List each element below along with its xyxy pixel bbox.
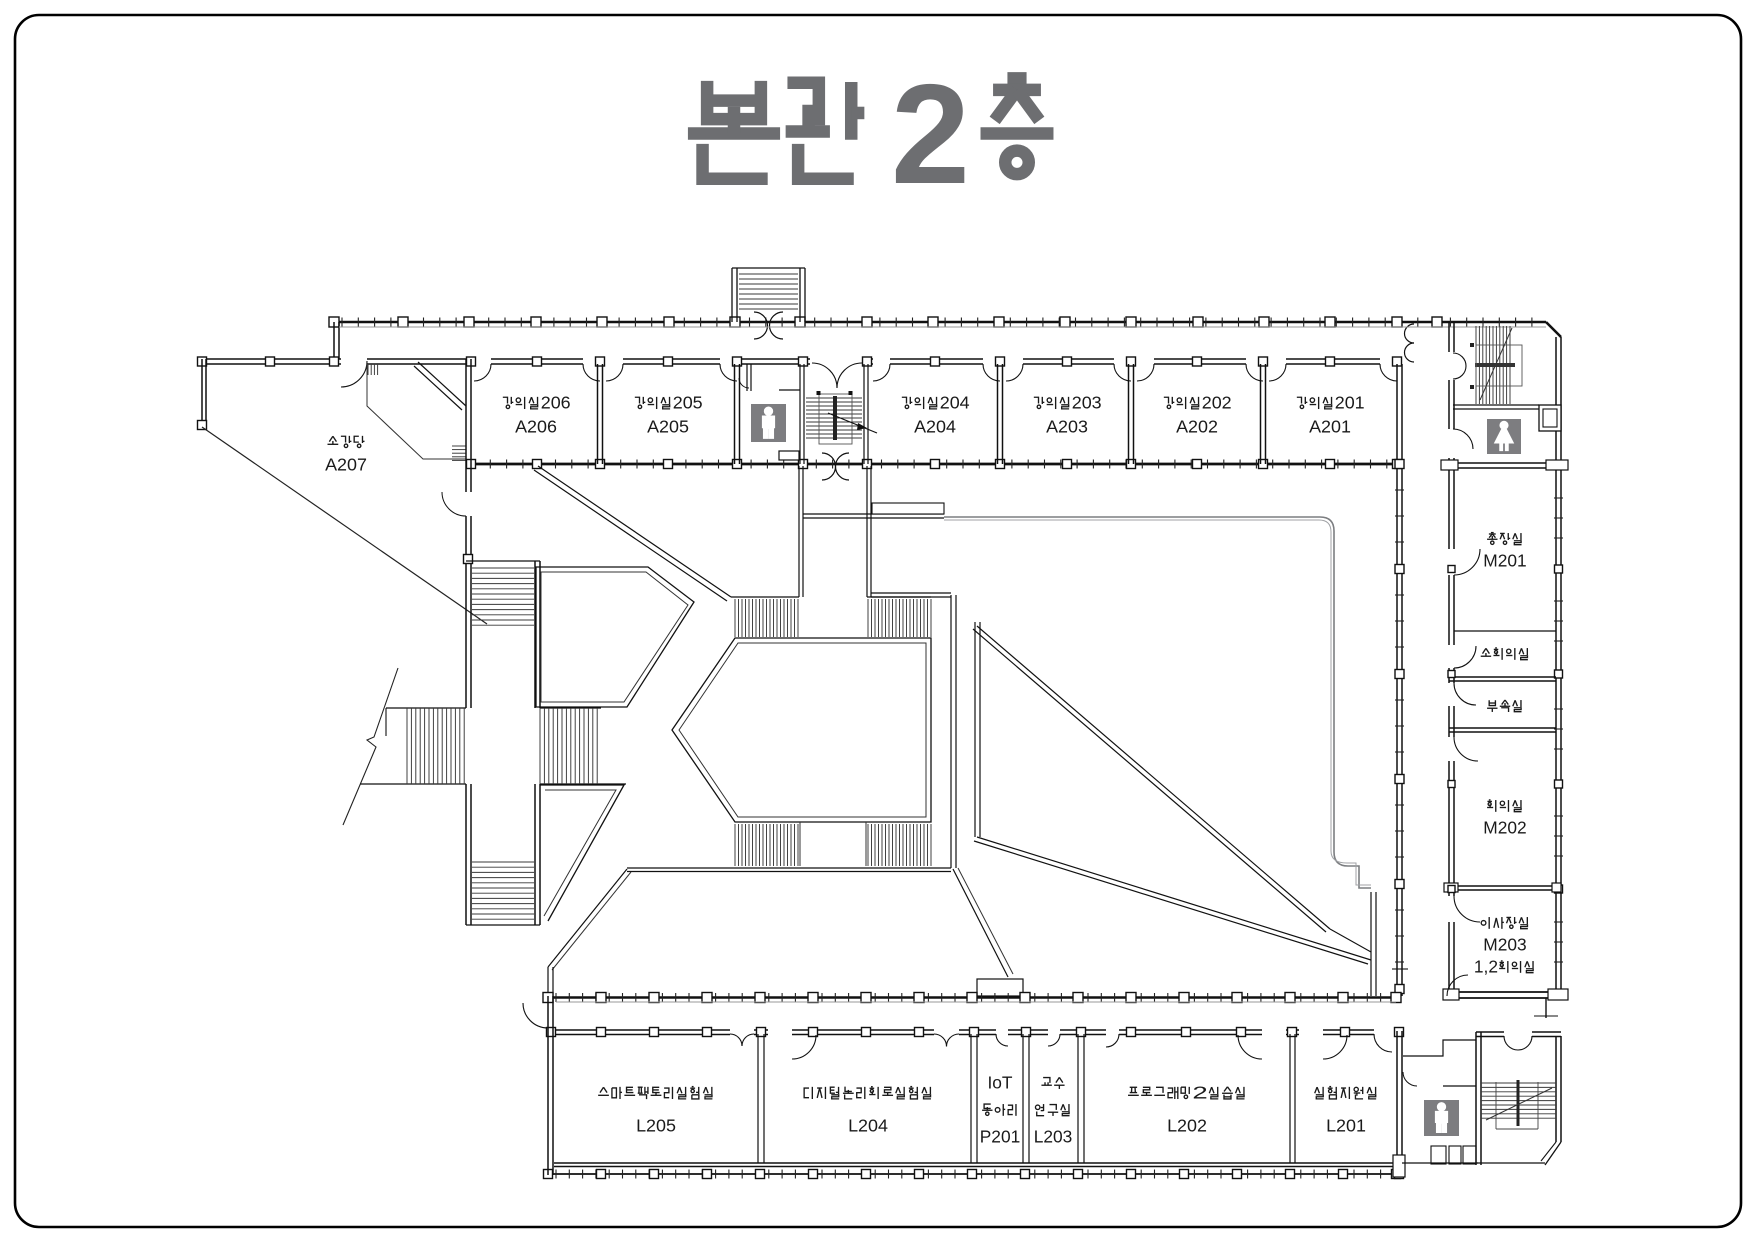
svg-text:A206: A206 (515, 417, 557, 437)
svg-text:L205: L205 (636, 1116, 676, 1136)
svg-text:M202: M202 (1483, 818, 1526, 838)
svg-text:A201: A201 (1309, 417, 1351, 437)
svg-text:A207: A207 (325, 455, 367, 475)
svg-text:L201: L201 (1326, 1116, 1366, 1136)
svg-text:206: 206 (541, 393, 571, 413)
svg-text:L203: L203 (1034, 1127, 1073, 1147)
svg-text:1,2: 1,2 (1474, 957, 1498, 977)
svg-text:A205: A205 (647, 417, 689, 437)
svg-text:A203: A203 (1046, 417, 1088, 437)
svg-text:2: 2 (891, 55, 970, 214)
svg-text:M203: M203 (1483, 935, 1526, 955)
svg-text:201: 201 (1335, 393, 1365, 413)
svg-text:P201: P201 (980, 1127, 1021, 1147)
svg-text:2: 2 (1192, 1083, 1207, 1103)
svg-text:204: 204 (940, 393, 970, 413)
svg-text:205: 205 (673, 393, 703, 413)
svg-text:IoT: IoT (987, 1073, 1012, 1093)
svg-text:A204: A204 (914, 417, 956, 437)
svg-text:L204: L204 (848, 1116, 888, 1136)
svg-text:L202: L202 (1167, 1116, 1207, 1136)
svg-text:M201: M201 (1483, 551, 1526, 571)
svg-text:202: 202 (1202, 393, 1232, 413)
svg-text:203: 203 (1072, 393, 1102, 413)
svg-text:A202: A202 (1176, 417, 1218, 437)
